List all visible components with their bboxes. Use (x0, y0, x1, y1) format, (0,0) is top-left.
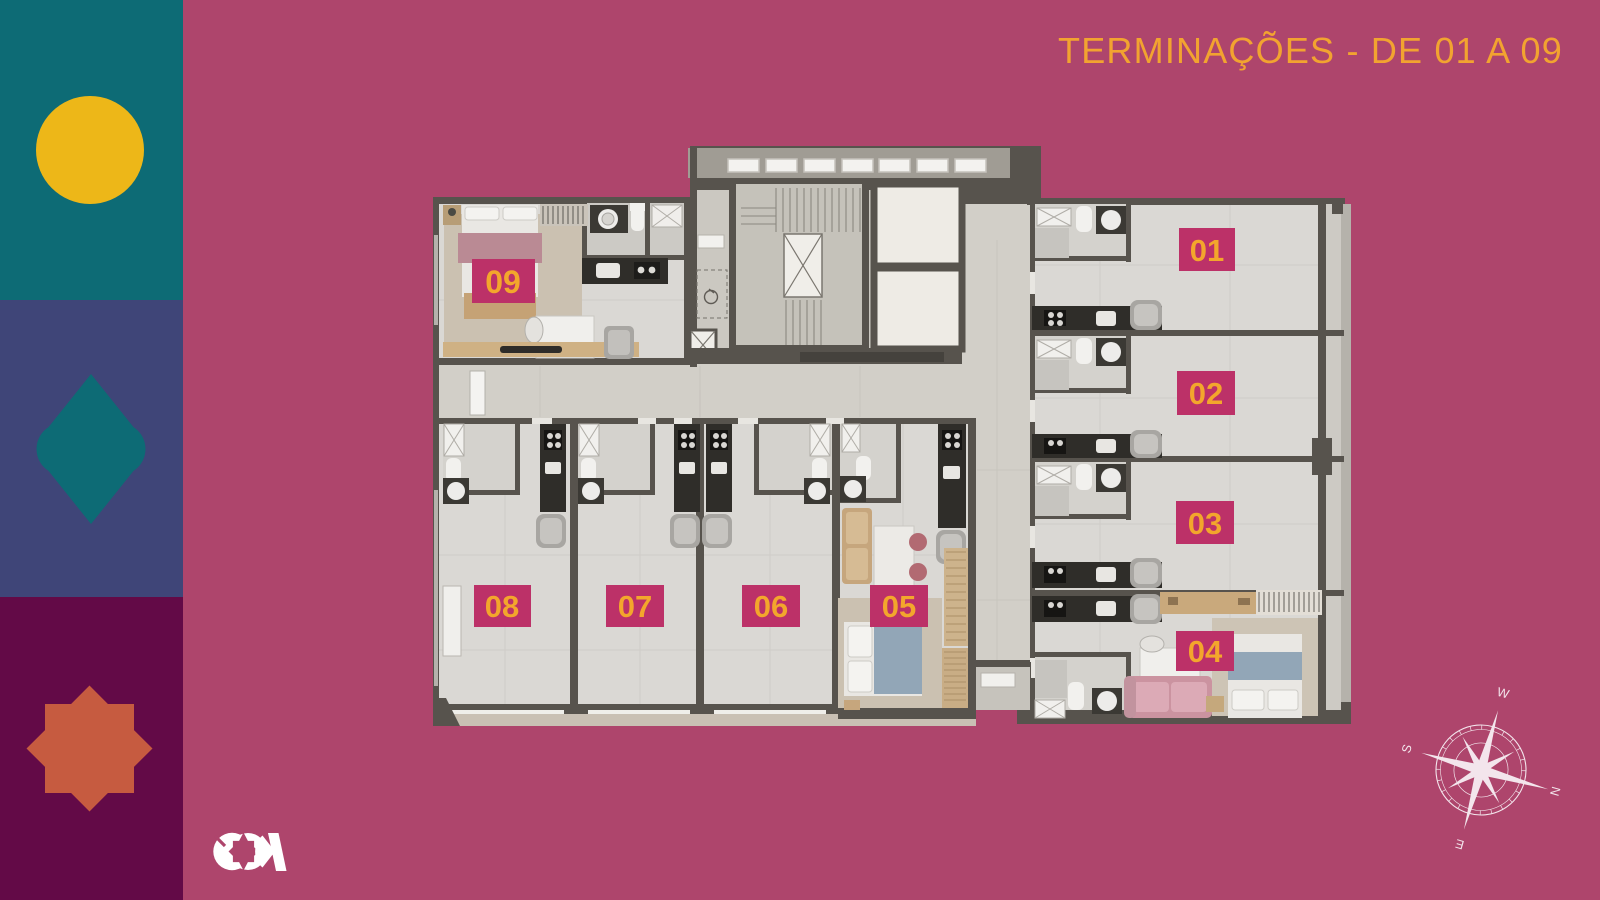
svg-text:N: N (1547, 785, 1563, 798)
svg-text:07: 07 (618, 589, 652, 624)
svg-text:S: S (1399, 743, 1415, 755)
svg-text:01: 01 (1190, 233, 1224, 268)
svg-text:04: 04 (1188, 634, 1223, 669)
svg-text:08: 08 (485, 589, 519, 624)
svg-text:05: 05 (882, 589, 916, 624)
svg-text:E: E (1454, 836, 1466, 852)
svg-text:09: 09 (485, 264, 521, 300)
svg-text:03: 03 (1188, 506, 1222, 541)
svg-text:02: 02 (1189, 376, 1223, 411)
svg-text:06: 06 (754, 589, 788, 624)
svg-text:W: W (1495, 685, 1510, 702)
